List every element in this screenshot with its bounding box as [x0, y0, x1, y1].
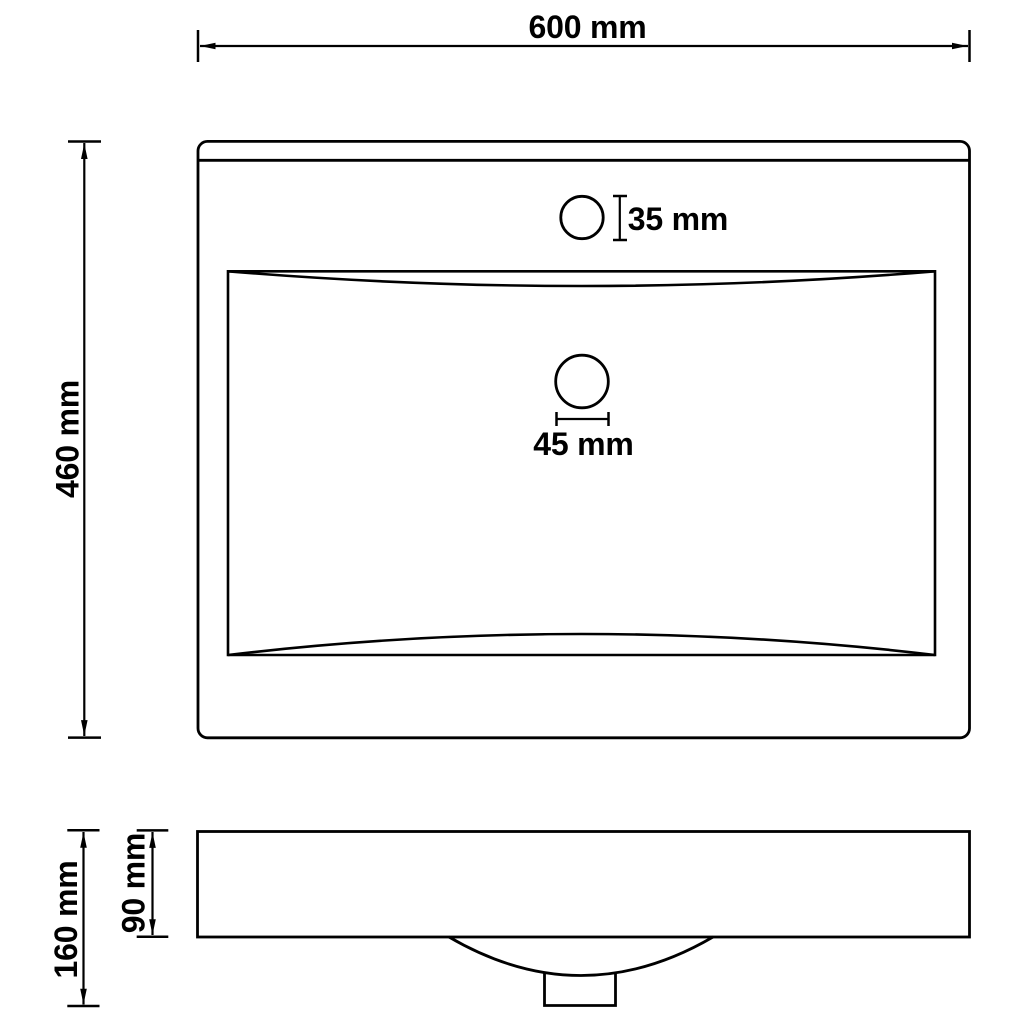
svg-text:45 mm: 45 mm — [533, 426, 633, 462]
svg-text:460 mm: 460 mm — [50, 380, 86, 498]
svg-text:160 mm: 160 mm — [48, 861, 84, 979]
svg-text:90 mm: 90 mm — [116, 833, 152, 933]
svg-text:35 mm: 35 mm — [628, 201, 728, 237]
svg-text:600 mm: 600 mm — [529, 9, 647, 45]
